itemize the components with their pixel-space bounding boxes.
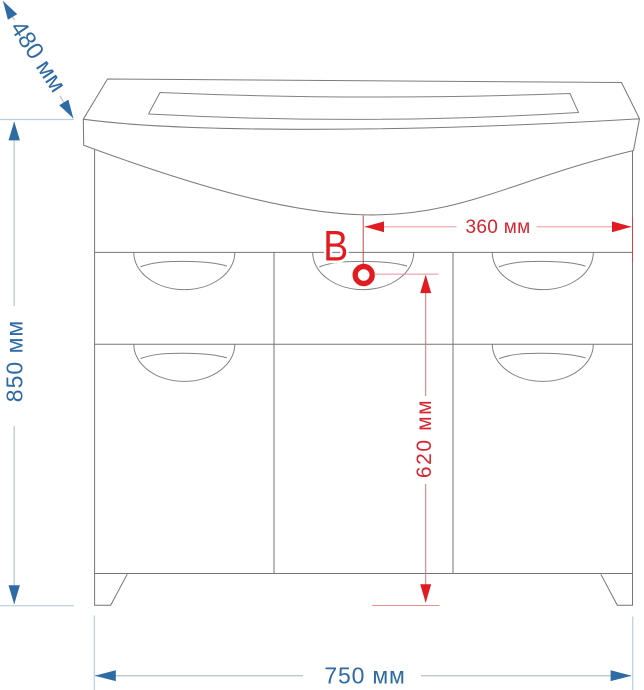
svg-text:850 мм: 850 мм — [2, 320, 28, 402]
svg-text:360 мм: 360 мм — [466, 217, 531, 238]
svg-text:750 мм: 750 мм — [324, 663, 405, 689]
svg-text:620 мм: 620 мм — [413, 399, 436, 478]
svg-text:B: B — [323, 222, 348, 270]
